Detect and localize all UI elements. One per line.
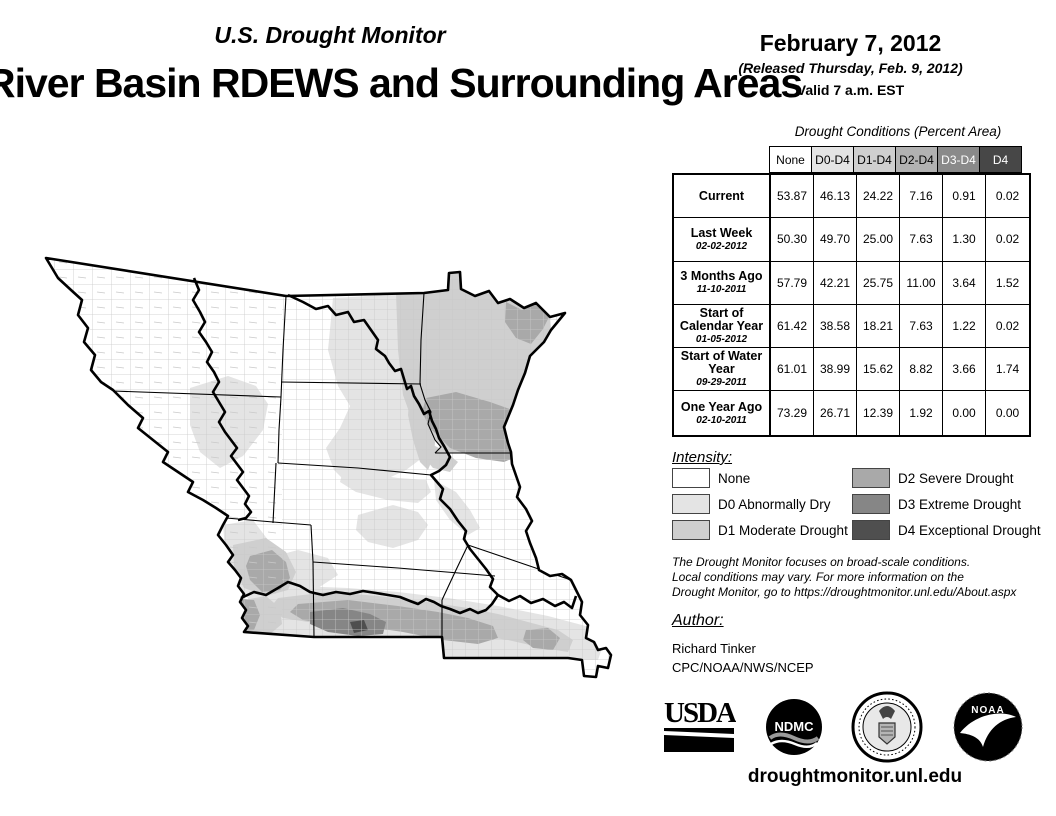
- legend-swatch-d4: [852, 520, 890, 540]
- table-value: 0.91: [943, 175, 986, 218]
- table-value: 15.62: [857, 348, 900, 391]
- table-value: 18.21: [857, 305, 900, 348]
- author-name: Richard Tinker: [672, 641, 756, 656]
- column-header-d3: D3-D4: [937, 146, 980, 173]
- legend-item-none: None: [672, 468, 750, 488]
- table-value: 1.74: [986, 348, 1029, 391]
- county-lines-east: [282, 246, 664, 712]
- legend-swatch-none: [672, 468, 710, 488]
- map-date: February 7, 2012: [698, 30, 1003, 57]
- legend-swatch-d2: [852, 468, 890, 488]
- author-heading: Author:: [672, 612, 724, 630]
- table-row-label: One Year Ago 02-10-2011: [674, 391, 771, 434]
- column-header-none: None: [769, 146, 812, 173]
- noaa-logo-icon: NOAA: [952, 691, 1024, 763]
- table-value: 50.30: [771, 218, 814, 261]
- table-value: 7.63: [900, 218, 943, 261]
- table-value: 49.70: [814, 218, 857, 261]
- table-value: 0.02: [986, 305, 1029, 348]
- table-value: 57.79: [771, 262, 814, 305]
- column-header-d1: D1-D4: [853, 146, 896, 173]
- table-value: 8.82: [900, 348, 943, 391]
- table-value: 12.39: [857, 391, 900, 434]
- table-value: 11.00: [900, 262, 943, 305]
- legend-swatch-d0: [672, 494, 710, 514]
- legend-title: Intensity:: [672, 449, 732, 466]
- usda-text: USDA: [664, 698, 736, 729]
- legend-item-d3: D3 Extreme Drought: [852, 494, 1021, 514]
- drought-monitor-heading: U.S. Drought Monitor: [150, 22, 510, 49]
- table-value: 7.63: [900, 305, 943, 348]
- table-value: 0.02: [986, 175, 1029, 218]
- table-value: 61.42: [771, 305, 814, 348]
- table-value: 24.22: [857, 175, 900, 218]
- table-value: 0.00: [986, 391, 1029, 434]
- table-value: 26.71: [814, 391, 857, 434]
- legend-item-d2: D2 Severe Drought: [852, 468, 1014, 488]
- table-value: 0.00: [943, 391, 986, 434]
- drought-conditions-table: Current 53.87 46.13 24.22 7.16 0.91 0.02…: [672, 173, 1031, 437]
- table-title: Drought Conditions (Percent Area): [769, 124, 1027, 139]
- table-value: 61.01: [771, 348, 814, 391]
- ndmc-logo-icon: NDMC: [765, 698, 823, 756]
- table-row-label: Last Week 02-02-2012: [674, 218, 771, 261]
- table-value: 25.00: [857, 218, 900, 261]
- table-value: 42.21: [814, 262, 857, 305]
- table-value: 0.02: [986, 218, 1029, 261]
- table-value: 1.52: [986, 262, 1029, 305]
- table-value: 1.22: [943, 305, 986, 348]
- table-value: 1.30: [943, 218, 986, 261]
- footer-url: droughtmonitor.unl.edu: [700, 766, 1010, 788]
- author-organization: CPC/NOAA/NWS/NCEP: [672, 660, 814, 675]
- table-row-label: Current: [674, 175, 771, 218]
- usda-logo-icon: USDA: [664, 698, 736, 756]
- table-value: 53.87: [771, 175, 814, 218]
- legend-item-d4: D4 Exceptional Drought: [852, 520, 1041, 540]
- table-value: 7.16: [900, 175, 943, 218]
- column-header-d4: D4: [979, 146, 1022, 173]
- table-value: 25.75: [857, 262, 900, 305]
- table-value: 38.58: [814, 305, 857, 348]
- table-value: 1.92: [900, 391, 943, 434]
- table-row-label: 3 Months Ago 11-10-2011: [674, 262, 771, 305]
- table-value: 46.13: [814, 175, 857, 218]
- page-title: River Basin RDEWS and Surrounding Areas: [0, 60, 802, 107]
- table-header-row: None D0-D4 D1-D4 D2-D4 D3-D4 D4: [769, 146, 1022, 173]
- drought-map: [34, 246, 664, 712]
- legend-item-d1: D1 Moderate Drought: [672, 520, 848, 540]
- column-header-d2: D2-D4: [895, 146, 938, 173]
- ndmc-text: NDMC: [774, 719, 814, 734]
- logo-row: USDA NDMC NOAA: [664, 692, 1024, 762]
- table-value: 3.64: [943, 262, 986, 305]
- table-value: 73.29: [771, 391, 814, 434]
- table-value: 38.99: [814, 348, 857, 391]
- column-header-d0: D0-D4: [811, 146, 854, 173]
- legend-swatch-d1: [672, 520, 710, 540]
- disclaimer-text: The Drought Monitor focuses on broad-sca…: [672, 555, 1016, 600]
- table-value: 3.66: [943, 348, 986, 391]
- commerce-seal-icon: [851, 691, 923, 763]
- county-lines-west: [34, 246, 282, 712]
- legend-swatch-d3: [852, 494, 890, 514]
- legend-item-d0: D0 Abnormally Dry: [672, 494, 831, 514]
- table-row-label: Start of Calendar Year 01-05-2012: [674, 305, 771, 348]
- table-row-label: Start of Water Year 09-29-2011: [674, 348, 771, 391]
